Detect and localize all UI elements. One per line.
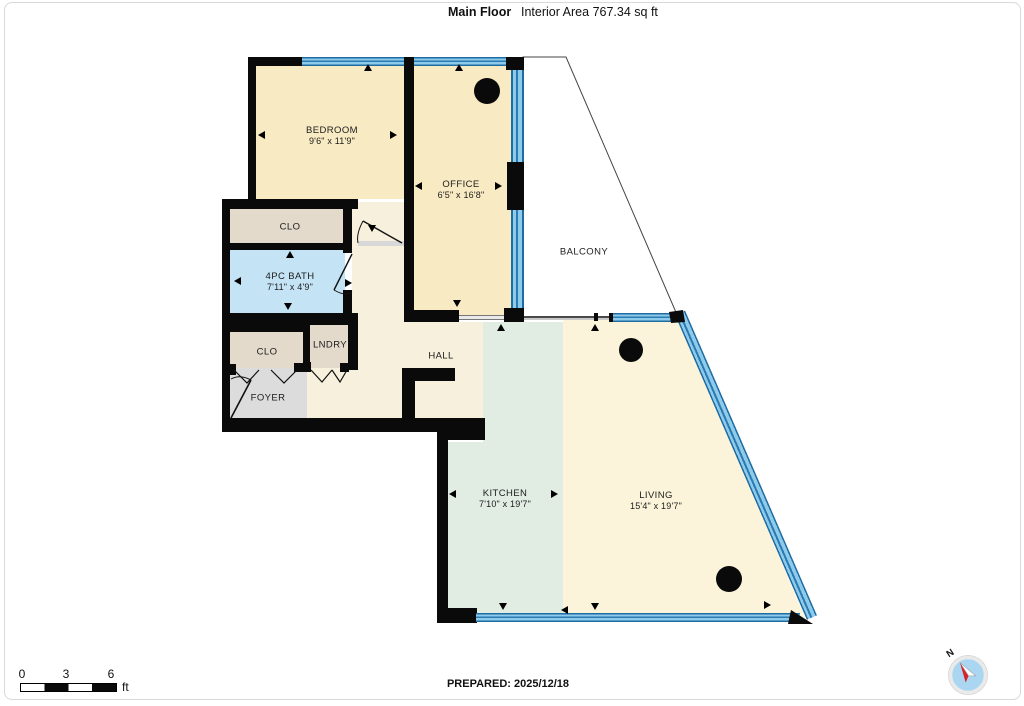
room-label-bedroom: BEDROOM 9'6" x 11'9" (306, 125, 358, 147)
dim-arrow-left (449, 490, 456, 498)
dim-arrow-down (499, 603, 507, 610)
bedroom-door-swing (358, 221, 363, 243)
dim-arrow-up (497, 324, 505, 331)
dim-arrow-right (764, 601, 771, 609)
dim-arrow-up (364, 64, 372, 71)
room-label-bath: 4PC BATH 7'11" x 4'9" (266, 271, 315, 293)
dim-arrow-left (561, 606, 568, 614)
dim-arrow-down (284, 303, 292, 310)
column-marker (619, 338, 643, 362)
room-label-kitchen: KITCHEN 7'10" x 19'7" (479, 488, 531, 510)
dim-arrow-left (415, 182, 422, 190)
prepared-date-label: PREPARED: 2025/12/18 (447, 678, 569, 690)
column-marker (716, 566, 742, 592)
room-label-office: OFFICE 6'5" x 16'8" (438, 179, 485, 201)
dim-arrow-right (390, 131, 397, 139)
room-label-living: LIVING 15'4" x 19'7" (630, 490, 682, 512)
room-label-hall: HALL (428, 350, 453, 361)
dim-arrow-up (286, 251, 294, 258)
bath-door-swing (334, 290, 352, 294)
room-label-closet-top: CLO (280, 221, 301, 232)
dim-arrow-up (591, 324, 599, 331)
scale-bar: 0 3 6 ft (18, 667, 168, 697)
wall-corner-bottom-right (788, 610, 813, 624)
scale-tick: 0 (19, 667, 26, 681)
column-marker (474, 78, 500, 104)
scale-tick: 3 (63, 667, 70, 681)
entry-door (231, 380, 251, 418)
dim-arrow-right (551, 490, 558, 498)
scale-bar-segments (20, 683, 117, 692)
room-label-laundry: LNDRY (313, 339, 347, 350)
room-label-closet-bottom: CLO (257, 346, 278, 357)
dim-arrow-down (453, 300, 461, 307)
door-layer (0, 0, 1024, 706)
room-label-foyer: FOYER (251, 392, 286, 403)
scale-unit-label: ft (122, 680, 129, 694)
laundry-bifold-door (311, 370, 347, 382)
dim-arrow-right (345, 279, 352, 287)
dim-arrow-up (455, 64, 463, 71)
dim-arrow-down (591, 603, 599, 610)
dim-arrow-left (234, 277, 241, 285)
closet-bifold-door (234, 370, 297, 383)
scale-tick: 6 (108, 667, 115, 681)
room-label-balcony: BALCONY (560, 246, 608, 257)
dim-arrow-down (368, 225, 376, 232)
wall-post-diagonal-top (669, 310, 685, 323)
dim-arrow-right (495, 182, 502, 190)
dim-arrow-left (258, 131, 265, 139)
floor-plan-page: { "header": { "title": "Main Floor", "su… (0, 0, 1024, 706)
